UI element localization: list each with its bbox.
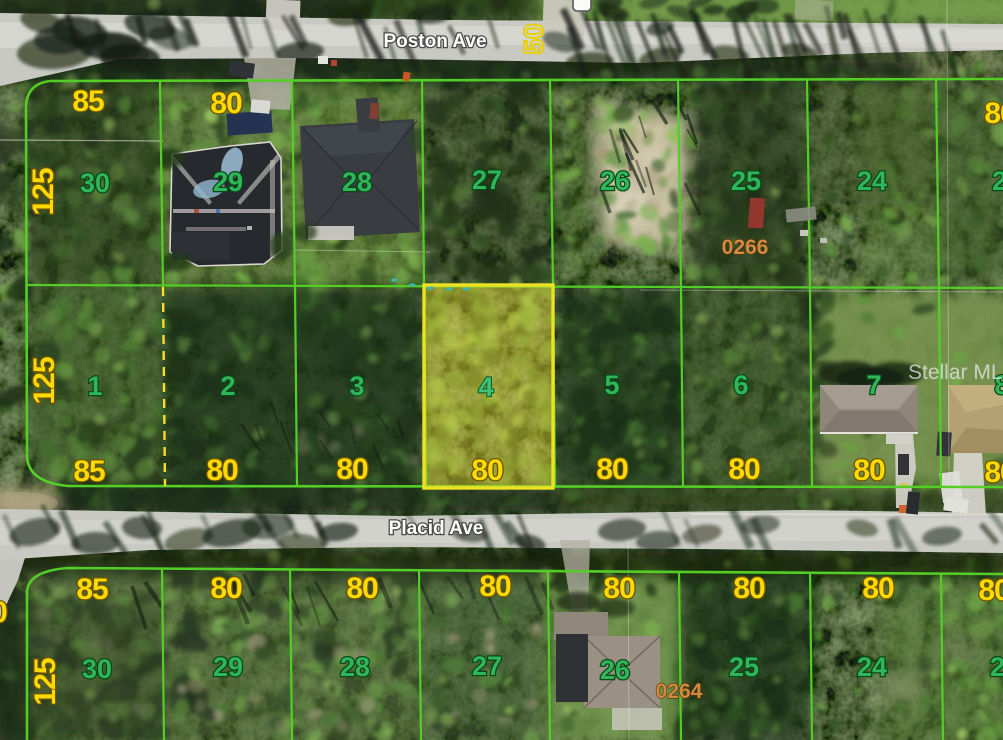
svg-text:125: 125 <box>27 168 60 215</box>
svg-text:80: 80 <box>978 574 1003 607</box>
svg-text:80: 80 <box>471 454 503 487</box>
svg-text:125: 125 <box>29 658 62 705</box>
svg-text:28: 28 <box>340 652 370 682</box>
svg-text:125: 125 <box>28 357 61 404</box>
svg-text:80: 80 <box>210 87 242 120</box>
svg-text:80: 80 <box>336 453 368 486</box>
svg-text:30: 30 <box>82 654 112 684</box>
svg-text:Stellar MLS: Stellar MLS <box>908 361 1003 384</box>
svg-text:30: 30 <box>80 168 110 198</box>
svg-text:25: 25 <box>729 652 759 682</box>
svg-text:6: 6 <box>733 370 748 400</box>
svg-text:27: 27 <box>472 165 502 195</box>
svg-text:28: 28 <box>342 167 372 197</box>
svg-text:26: 26 <box>600 166 630 196</box>
svg-text:2: 2 <box>220 371 235 401</box>
svg-text:80: 80 <box>862 572 894 605</box>
svg-text:0264: 0264 <box>656 680 703 703</box>
svg-text:85: 85 <box>73 455 105 488</box>
svg-text:80: 80 <box>984 97 1003 130</box>
svg-text:80: 80 <box>206 454 238 487</box>
svg-text:0266: 0266 <box>722 236 769 259</box>
svg-text:80: 80 <box>596 453 628 486</box>
svg-text:80: 80 <box>853 454 885 487</box>
svg-text:80: 80 <box>346 572 378 605</box>
svg-text:80: 80 <box>479 570 511 603</box>
svg-text:4: 4 <box>478 372 493 402</box>
svg-text:24: 24 <box>857 652 887 682</box>
svg-text:5: 5 <box>604 370 619 400</box>
svg-text:29: 29 <box>213 652 243 682</box>
svg-text:7: 7 <box>866 370 881 400</box>
svg-text:80: 80 <box>603 572 635 605</box>
svg-text:80: 80 <box>984 456 1003 489</box>
svg-text:80: 80 <box>0 596 7 629</box>
svg-text:25: 25 <box>731 166 761 196</box>
svg-text:23: 23 <box>992 166 1003 196</box>
svg-text:80: 80 <box>733 572 765 605</box>
svg-text:Poston Ave: Poston Ave <box>383 31 486 52</box>
svg-text:24: 24 <box>857 166 887 196</box>
svg-text:1: 1 <box>87 371 102 401</box>
svg-text:80: 80 <box>210 572 242 605</box>
svg-text:50: 50 <box>518 23 549 54</box>
svg-text:23: 23 <box>990 652 1003 682</box>
svg-text:85: 85 <box>72 85 104 118</box>
svg-text:3: 3 <box>349 371 364 401</box>
svg-text:26: 26 <box>600 655 630 685</box>
svg-text:29: 29 <box>213 167 243 197</box>
svg-text:Placid Ave: Placid Ave <box>389 518 484 539</box>
svg-text:85: 85 <box>76 573 108 606</box>
svg-text:27: 27 <box>472 651 502 681</box>
svg-text:80: 80 <box>728 453 760 486</box>
